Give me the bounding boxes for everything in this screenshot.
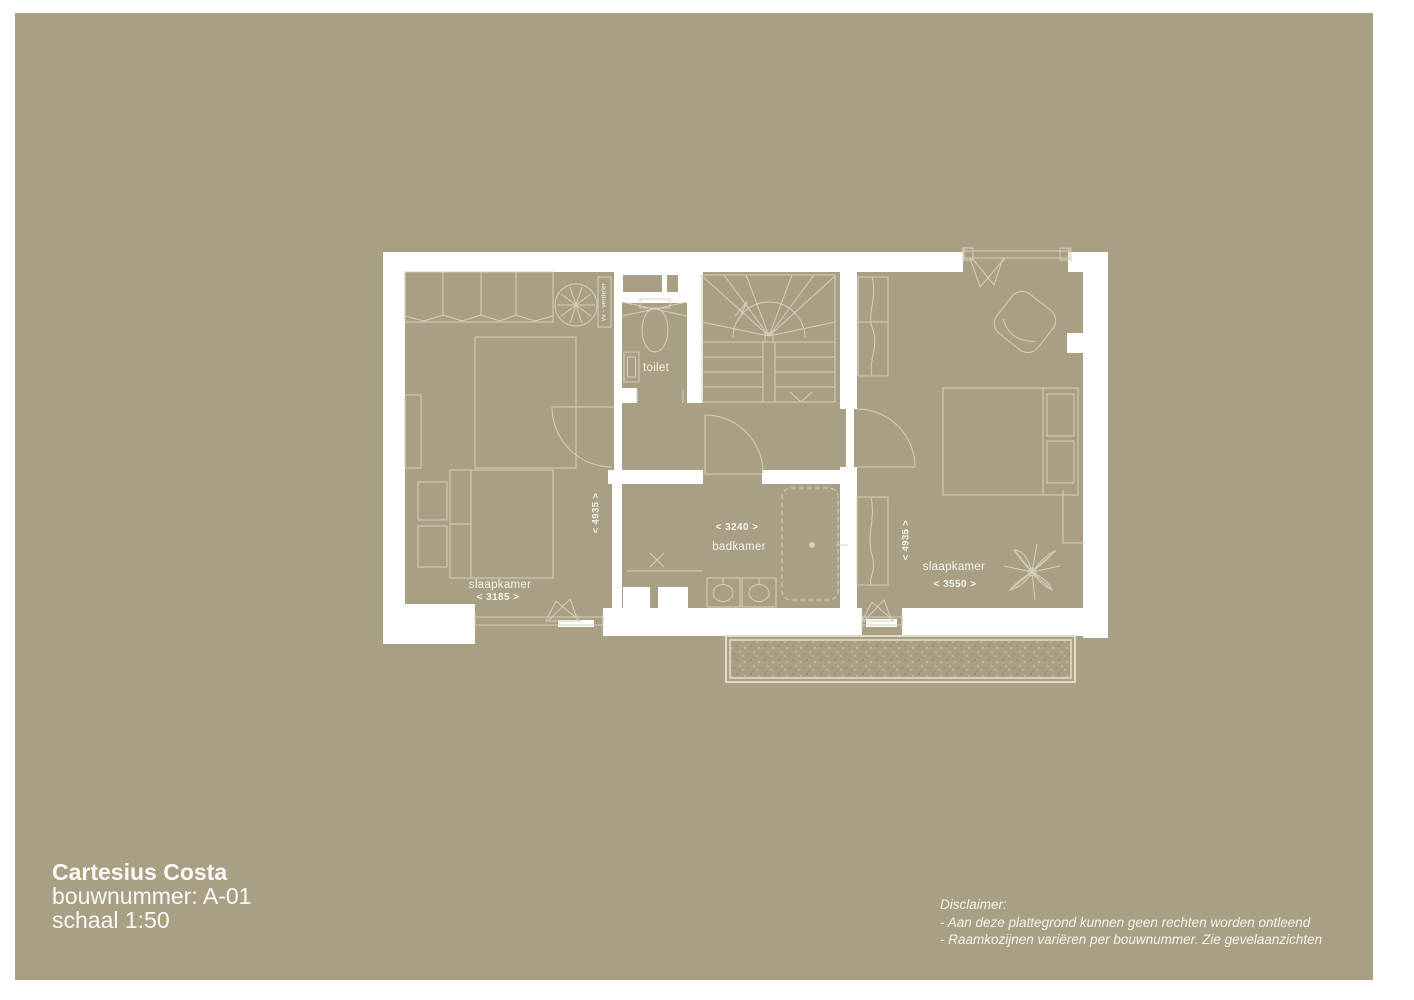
door-swing-bathroom: [703, 415, 763, 474]
dimension-bedroom-right-depth: < 4935 >: [901, 520, 912, 561]
disclaimer-heading: Disclaimer:: [940, 896, 1322, 914]
annotation-vv-verdeler: vv - verdeler: [601, 283, 608, 321]
staircase-icon: [702, 275, 835, 402]
shower-icon: [782, 488, 848, 600]
wardrobe-icon-right-bottom: [857, 497, 888, 585]
wardrobe-icon: [405, 272, 553, 322]
disclaimer-block: Disclaimer: - Aan deze plattegrond kunne…: [940, 896, 1322, 949]
floor-plan-drawing: [0, 0, 1414, 1000]
project-title: Cartesius Costa: [52, 860, 251, 884]
bed-icon: [418, 470, 553, 578]
terrace: [726, 636, 1075, 682]
washbasins-icon: [707, 578, 776, 607]
room-label-bathroom: badkamer: [712, 541, 766, 553]
toilet-icon: [622, 299, 687, 352]
room-label-toilet: toilet: [643, 362, 669, 374]
floor-drain-icon: [627, 553, 703, 571]
closet-outline: [405, 337, 576, 468]
toilet-door-jambs: [637, 390, 683, 403]
room-label-bedroom-right: slaapkamer: [923, 561, 985, 573]
dimension-bathroom-width: < 3240 >: [716, 522, 759, 533]
window-icon-bottom-right: [862, 600, 902, 629]
armchair-icon: [989, 286, 1061, 357]
door-swing-bedroom-left: [552, 407, 614, 467]
wardrobe-icon-right-top: [858, 277, 888, 376]
drawing-sheet: toilet < 3240 > badkamer slaapkamer < 31…: [0, 0, 1414, 1000]
sink-icon: [624, 352, 639, 382]
disclaimer-line-1: - Aan deze plattegrond kunnen geen recht…: [940, 914, 1322, 932]
door-swing-bedroom-right: [857, 409, 915, 467]
builtin-corner-line: [1063, 490, 1085, 543]
wall-niches: [623, 275, 678, 292]
window-icon-top: [963, 247, 1071, 287]
disclaimer-line-2: - Raamkozijnen variëren per bouwnummer. …: [940, 931, 1322, 949]
bouwnummer: bouwnummer: A-01: [52, 884, 251, 908]
title-block: Cartesius Costa bouwnummer: A-01 schaal …: [52, 860, 251, 932]
ceiling-fan-icon: [555, 284, 597, 326]
bed-icon-right: [943, 388, 1078, 495]
schaal: schaal 1:50: [52, 908, 251, 932]
dimension-bedroom-left-width: < 3185 >: [477, 592, 520, 603]
dimension-bedroom-right-width: < 3550 >: [934, 579, 977, 590]
room-label-bedroom-left: slaapkamer: [469, 579, 531, 591]
plant-icon: [1004, 544, 1060, 600]
window-icon-bottom-left: [475, 599, 603, 629]
dimension-bedroom-left-depth: < 4935 >: [591, 493, 602, 534]
